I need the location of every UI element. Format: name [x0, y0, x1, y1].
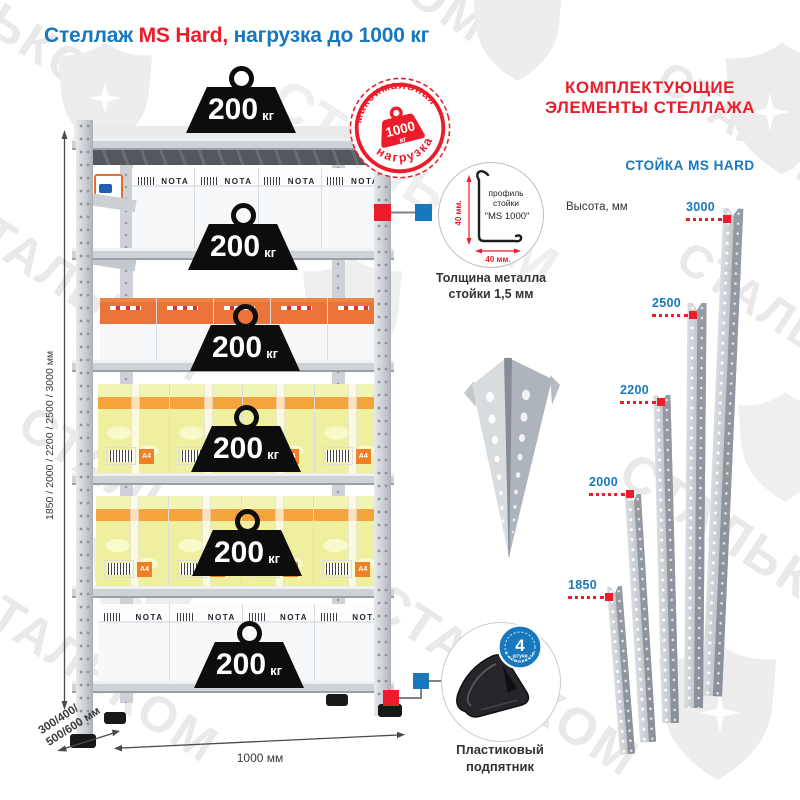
profile-drawing: 40 мм. 40 мм. профиль стойки "MS 1000" — [439, 163, 543, 267]
arrowhead-icon — [514, 249, 521, 254]
thickness-line2: стойки 1,5 мм — [449, 287, 534, 301]
barcode-decoration — [201, 177, 217, 185]
components-header: КОМПЛЕКТУЮЩИЕ ЭЛЕМЕНТЫ СТЕЛЛАЖА — [505, 78, 795, 118]
weight-unit: кг — [266, 346, 278, 361]
box-brand-label: NOTA — [161, 177, 189, 186]
shelf-board — [72, 473, 394, 485]
weight-value: 200 — [208, 95, 258, 125]
a4-label: A4 — [137, 562, 152, 577]
shelf-load-weight: 200кг — [188, 203, 298, 270]
barcode-decoration — [106, 447, 136, 465]
barcode-decoration — [323, 447, 353, 465]
watermark-text: СТАЛЬКОМ — [600, 0, 800, 80]
arrowhead-icon — [467, 175, 472, 182]
shelf-load-weight: 200кг — [192, 509, 302, 576]
shelf-load-weight: 200кг — [190, 304, 300, 371]
weight-unit: кг — [262, 108, 274, 123]
red-marker-square — [689, 311, 697, 319]
box-print-decoration — [110, 306, 141, 310]
profile-dim-vertical: 40 мм. — [454, 200, 463, 225]
title-part-blue: Стеллаж — [44, 24, 139, 47]
height-dimension-label: 1850 / 2000 / 2200 / 2500 / 3000 мм — [44, 325, 56, 520]
shield-watermark-icon — [470, 0, 565, 84]
barcode-decoration — [322, 560, 352, 578]
post-height-callout: 2000 — [589, 475, 634, 498]
post-height-value: 2500 — [652, 296, 697, 310]
shelf-board — [72, 586, 394, 598]
paper-box — [100, 298, 156, 360]
red-marker-square — [657, 398, 665, 406]
metal-thickness-note: Толщина металла стойки 1,5 мм — [418, 270, 564, 303]
plastic-foot — [70, 734, 96, 748]
red-marker-square — [605, 593, 613, 601]
weight-unit: кг — [264, 245, 276, 260]
weight-unit: кг — [268, 551, 280, 566]
shelf-load-weight: 200кг — [191, 405, 301, 472]
post-3000mm — [702, 208, 743, 696]
corner-post-photo — [452, 344, 562, 566]
weight-value: 200 — [213, 434, 263, 464]
dotted-leader — [686, 218, 722, 221]
profile-dim-horizontal: 40 мм. — [485, 255, 510, 264]
shelf-load-weight: 200кг — [194, 621, 304, 688]
rack-front-left-post — [76, 120, 93, 742]
box-print-decoration — [338, 306, 369, 310]
shelf-board — [72, 138, 394, 150]
arrowhead-icon — [112, 730, 120, 737]
blue-callout-square — [413, 673, 429, 689]
shield-watermark-icon — [735, 390, 800, 505]
post-2200mm — [653, 395, 679, 723]
quantity-badge: 4 штуки в комплекте — [497, 624, 543, 670]
barcode-decoration — [177, 613, 193, 621]
post-height-callout: 1850 — [568, 578, 613, 601]
a4-label: A4 — [139, 449, 154, 464]
badge-count: 4 — [515, 636, 525, 655]
arrowhead-icon — [114, 745, 122, 752]
shelf-load-weight: 200кг — [186, 66, 296, 133]
dotted-leader — [620, 401, 656, 404]
arrowhead-icon — [397, 732, 405, 739]
thickness-line1: Толщина металла — [436, 271, 546, 285]
plastic-foot — [326, 694, 348, 706]
barcode-decoration — [321, 613, 337, 621]
profile-text-line3: "MS 1000" — [485, 211, 530, 222]
box-brand-label: NOTA — [288, 177, 316, 186]
nota-box: NOTA — [132, 168, 194, 248]
profile-text-line2: стойки — [493, 198, 519, 208]
plastic-foot — [104, 712, 126, 724]
header-line1: КОМПЛЕКТУЮЩИЕ — [565, 78, 735, 97]
title-part-blue: нагрузка до 1000 кг — [228, 24, 429, 47]
red-callout-square — [383, 690, 399, 706]
height-column-label: Высота, мм — [566, 201, 628, 213]
barcode-decoration — [327, 177, 343, 185]
dotted-leader — [652, 314, 688, 317]
red-marker-square — [723, 215, 731, 223]
product-infographic: СТАЛЬКОМ СТАЛЬКОМ СТАЛЬКОМ СТАЛЬКОМ СТАЛ… — [0, 0, 800, 800]
post-1850mm — [607, 586, 635, 755]
width-dimension-label: 1000 мм — [210, 751, 310, 765]
foot-label-line2: подпятник — [466, 759, 534, 774]
post-2500mm — [684, 303, 707, 708]
page-title: Стеллаж MS Hard, нагрузка до 1000 кг — [44, 24, 429, 48]
arrowhead-icon — [475, 249, 482, 254]
box-brand-label: NOTA — [135, 613, 163, 622]
a4-paper-box: A4 — [96, 496, 168, 586]
red-marker-square — [626, 490, 634, 498]
a4-paper-box: A4 — [98, 384, 169, 473]
post-section-subheader: СТОЙКА MS HARD — [560, 158, 800, 173]
red-callout-square — [374, 204, 391, 221]
foot-label-line1: Пластиковый — [456, 742, 544, 757]
a4-label: A4 — [355, 562, 370, 577]
barcode-decoration — [264, 177, 280, 185]
plastic-foot-label: Пластиковый подпятник — [430, 742, 570, 776]
box-brand-label: NOTA — [224, 177, 252, 186]
arrowhead-icon — [467, 238, 472, 245]
barcode-decoration — [249, 613, 265, 621]
nota-box: NOTA — [98, 604, 169, 681]
post-height-callout: 2200 — [620, 383, 665, 406]
barcode-decoration — [104, 560, 134, 578]
width-dimension-line — [121, 735, 398, 748]
blue-callout-square — [415, 204, 432, 221]
arrowhead-icon — [57, 746, 67, 752]
weight-unit: кг — [270, 663, 282, 678]
weight-unit: кг — [267, 447, 279, 462]
post-height-value: 3000 — [686, 200, 731, 214]
dotted-leader — [589, 493, 625, 496]
post-profile-detail-circle: 40 мм. 40 мм. профиль стойки "MS 1000" — [438, 162, 544, 268]
title-part-red: MS Hard, — [139, 24, 228, 47]
a4-label: A4 — [356, 449, 371, 464]
barcode-decoration — [138, 177, 154, 185]
weight-value: 200 — [212, 333, 262, 363]
post-height-callout: 2500 — [652, 296, 697, 319]
post-height-value: 1850 — [568, 578, 613, 592]
barcode-decoration — [104, 613, 120, 621]
weight-value: 200 — [216, 650, 266, 680]
weight-value: 200 — [214, 538, 264, 568]
dotted-leader — [568, 596, 604, 599]
watermark-text: СТАЛЬКОМ — [0, 0, 139, 124]
arrowhead-icon — [62, 130, 68, 139]
weight-value: 200 — [210, 232, 260, 262]
post-height-value: 2000 — [589, 475, 634, 489]
post-height-callout: 3000 — [686, 200, 731, 223]
profile-text-line1: профиль — [488, 188, 524, 198]
header-line2: ЭЛЕМЕНТЫ СТЕЛЛАЖА — [545, 98, 755, 117]
post-height-value: 2200 — [620, 383, 665, 397]
